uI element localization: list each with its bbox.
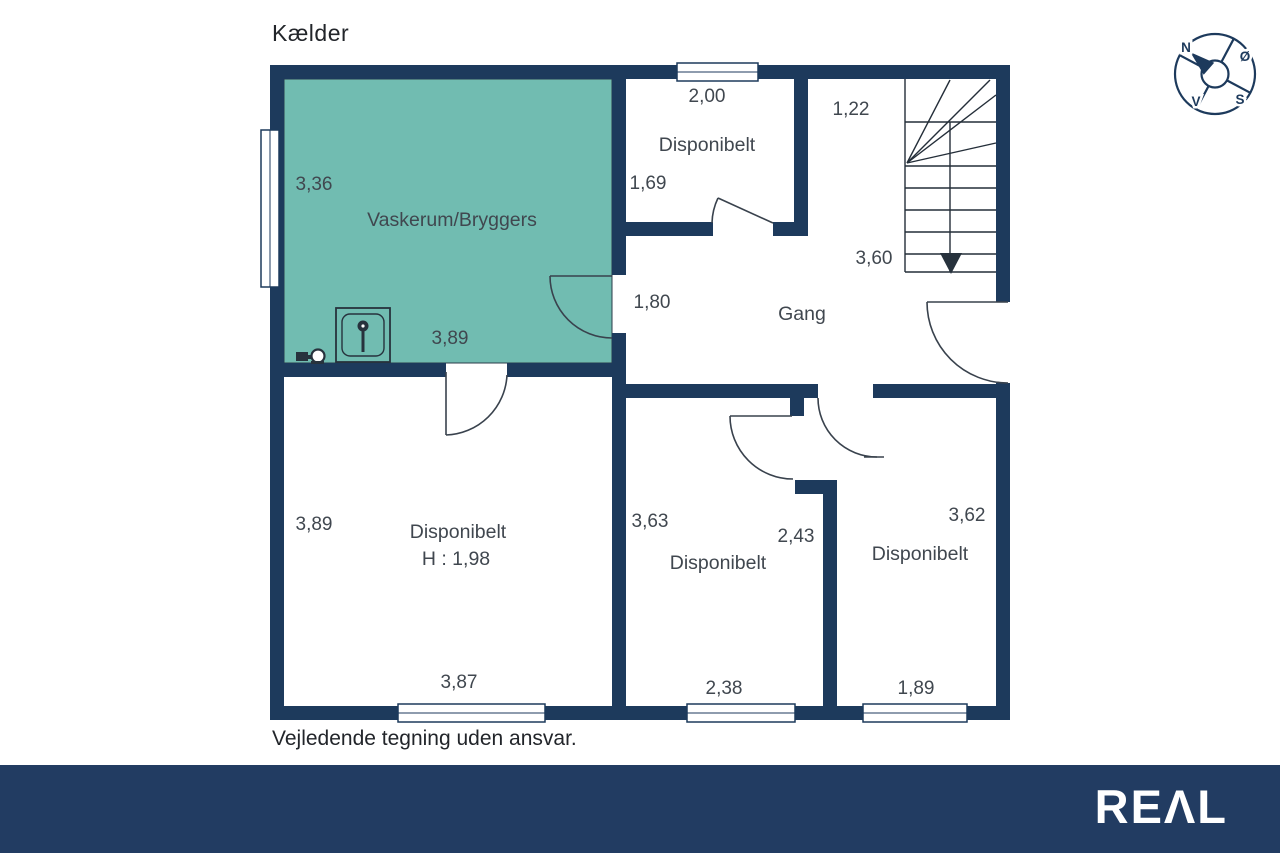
compass-label-east: Ø [1240,49,1251,64]
wall-topdisp-bottom-left [612,222,713,236]
wall-gang-bottom-left [612,384,818,398]
sink-faucet-dot [361,324,364,327]
door-arc-vaskerum-to-bottomleft [446,375,507,435]
disclaimer-text: Vejledende tegning uden ansvar. [272,727,577,751]
compass-label-south: S [1235,92,1244,107]
dim-bottomright-right: 3,62 [949,505,986,526]
dim-topdisp-top: 2,00 [689,86,726,107]
dim-bottommiddle-bottom: 2,38 [706,678,743,699]
wall-outer-right-lower [996,383,1010,720]
dim-bottomleft-bottom: 3,87 [441,672,478,693]
wall-gang-bottom-right [873,384,1010,398]
tap-base [311,361,324,364]
dim-bottomright-bottom: 1,89 [898,678,935,699]
compass-label-north: N [1181,40,1191,55]
room-height-bottomleft: H : 1,98 [422,548,490,570]
door-arc-gang-to-bottomright [818,398,877,457]
dim-bottomleft-left: 3,89 [296,514,333,535]
dim-vaskerum-bottom: 3,89 [432,328,469,349]
wall-vaskerum-bottom-right [507,363,626,377]
tap-icon [296,352,308,361]
dim-gang-left: 1,80 [634,292,671,313]
staircase [905,79,996,274]
dim-bottommiddle-left: 3,63 [632,511,669,532]
wall-outer-top [270,65,1010,79]
wall-center-vertical-upper [612,65,626,275]
compass-spoke-ne [1222,39,1234,62]
room-label-topdisp: Disponibelt [659,134,756,156]
room-label-bottommiddle: Disponibelt [670,552,767,574]
floorplan-drawing: 3,36 Vaskerum/Bryggers 3,89 2,00 Disponi… [0,0,1280,765]
wall-topdisp-right [794,65,808,236]
dim-vaskerum-left: 3,36 [296,174,333,195]
room-label-bottomleft: Disponibelt [410,521,507,543]
room-label-gang: Gang [778,303,826,325]
real-logo: REΛL [1095,783,1228,830]
floorplan-page: Kælder [0,0,1280,853]
door-arc-gang-to-bottommiddle [730,416,793,479]
tap-valve [312,350,325,363]
compass-rose-icon: N Ø V S [1175,34,1255,114]
stair-down-arrow-icon [940,253,962,274]
wall-vaskerum-bottom-left [270,363,446,377]
wall-outer-right-upper [996,65,1010,302]
dim-topdisp-left: 1,69 [630,173,667,194]
compass-label-west: V [1191,94,1200,109]
wall-topdisp-bottom-right [773,222,808,236]
door-arc-exterior-right [927,302,1008,383]
dim-stairs-top: 1,22 [833,99,870,120]
room-label-vaskerum: Vaskerum/Bryggers [367,209,537,231]
door-leaf-topdisp [718,198,773,223]
wall-stub [790,398,804,416]
dim-bottommiddle-right: 2,43 [778,526,815,547]
footer-bar: REΛL [0,765,1280,853]
dim-stairs-length: 3,60 [856,248,893,269]
door-arc-topdisp [712,198,718,223]
room-label-bottomright: Disponibelt [872,543,969,565]
wall-divider-bottom-rooms [823,480,837,706]
compass-spoke-se [1227,81,1250,93]
